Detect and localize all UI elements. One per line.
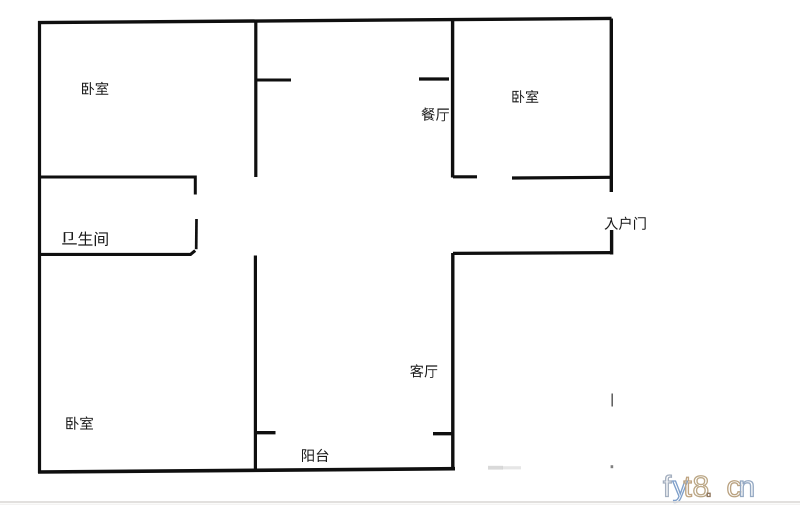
svg-text:f: f xyxy=(663,470,672,503)
svg-text:n: n xyxy=(739,470,756,503)
svg-text:t: t xyxy=(684,470,693,503)
svg-text:.: . xyxy=(705,470,713,503)
